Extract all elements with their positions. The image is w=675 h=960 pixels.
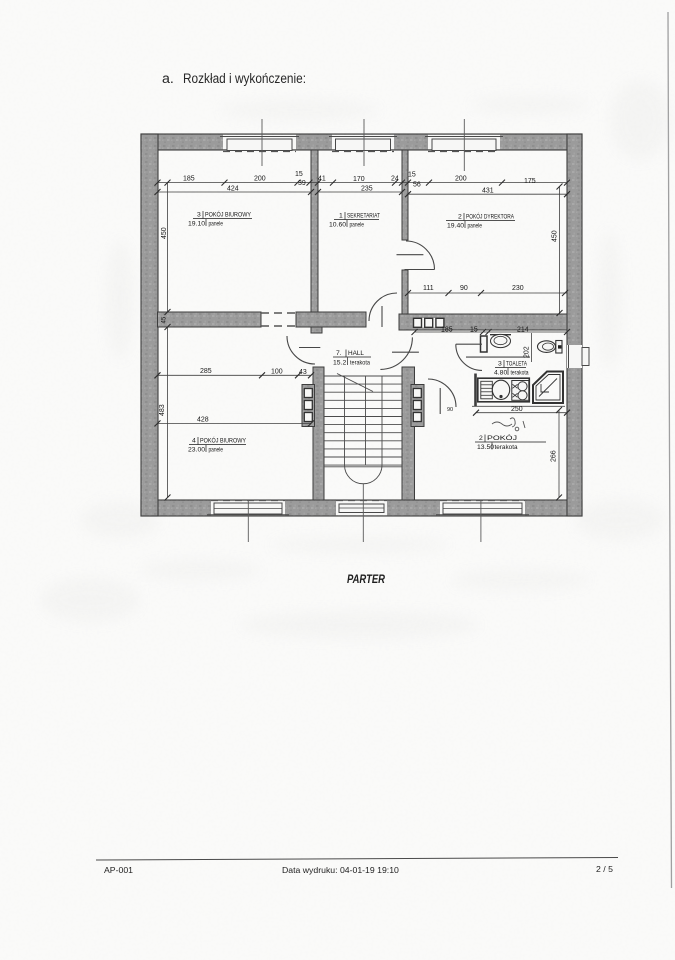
svg-text:19.10: 19.10 [188, 221, 205, 228]
svg-text:230: 230 [512, 285, 524, 292]
svg-text:POKÓJ BIUROWY: POKÓJ BIUROWY [205, 210, 251, 219]
svg-text:3: 3 [197, 212, 201, 219]
svg-text:24: 24 [391, 176, 399, 183]
svg-text:90: 90 [460, 285, 468, 292]
svg-text:terakota: terakota [350, 360, 370, 367]
svg-text:15: 15 [470, 327, 478, 334]
svg-text:100: 100 [271, 369, 283, 376]
svg-text:POKÓJ: POKÓJ [487, 433, 517, 442]
svg-text:431: 431 [482, 188, 494, 195]
svg-text:panele: panele [209, 221, 224, 228]
svg-text:2: 2 [458, 214, 462, 221]
svg-text:170: 170 [353, 176, 365, 183]
svg-text:200: 200 [455, 176, 467, 183]
svg-text:terakota: terakota [495, 444, 518, 451]
svg-text:450: 450 [552, 230, 559, 242]
svg-text:7.: 7. [336, 350, 342, 357]
svg-text:2 / 5: 2 / 5 [596, 864, 613, 874]
svg-text:a.: a. [162, 71, 174, 87]
svg-text:483: 483 [159, 404, 166, 416]
svg-text:450: 450 [161, 227, 168, 239]
svg-text:terakota: terakota [511, 370, 529, 377]
svg-text:panele: panele [350, 222, 365, 229]
svg-text:185: 185 [183, 176, 195, 183]
svg-text:AP-001: AP-001 [104, 865, 133, 875]
svg-text:175: 175 [524, 178, 536, 185]
svg-text:39: 39 [298, 180, 306, 187]
svg-text:202: 202 [524, 346, 531, 358]
svg-text:13.50: 13.50 [477, 444, 494, 451]
svg-text:panele: panele [209, 447, 224, 454]
svg-text:111: 111 [423, 285, 434, 292]
svg-text:19.40: 19.40 [447, 223, 464, 230]
svg-text:45: 45 [162, 316, 168, 323]
svg-text:POKÓJ DYREKTORA: POKÓJ DYREKTORA [466, 212, 514, 221]
svg-text:4.80: 4.80 [494, 370, 507, 377]
svg-text:43: 43 [299, 369, 307, 376]
svg-text:Rozkład i wykończenie:: Rozkład i wykończenie: [183, 71, 306, 87]
svg-text:200: 200 [254, 176, 266, 183]
svg-text:250: 250 [511, 406, 523, 413]
svg-text:panele: panele [468, 223, 483, 230]
svg-text:41: 41 [318, 176, 326, 183]
svg-text:HALL: HALL [348, 350, 364, 357]
svg-text:1: 1 [339, 213, 343, 220]
svg-text:POKÓJ BIUROWY: POKÓJ BIUROWY [200, 436, 246, 445]
svg-text:285: 285 [200, 368, 212, 375]
svg-text:PARTER: PARTER [347, 574, 386, 586]
svg-text:15: 15 [408, 172, 416, 179]
svg-text:185: 185 [441, 327, 453, 334]
svg-text:2: 2 [479, 435, 483, 442]
svg-text:15.2: 15.2 [333, 360, 346, 367]
svg-text:90: 90 [447, 407, 453, 413]
svg-text:15: 15 [295, 171, 303, 178]
svg-text:424: 424 [227, 186, 239, 193]
svg-text:235: 235 [361, 186, 373, 193]
svg-text:10.60: 10.60 [329, 222, 346, 229]
svg-text:Data wydruku: 04-01-19 19:10: Data wydruku: 04-01-19 19:10 [282, 865, 399, 875]
svg-text:214: 214 [517, 327, 529, 334]
svg-text:3: 3 [498, 361, 502, 368]
svg-text:4: 4 [192, 438, 196, 445]
svg-text:TOALETA: TOALETA [506, 361, 527, 368]
svg-text:23.00: 23.00 [188, 447, 205, 454]
svg-text:SEKRETARIAT: SEKRETARIAT [347, 213, 380, 220]
svg-text:266: 266 [551, 450, 558, 462]
svg-text:56: 56 [413, 182, 421, 189]
svg-text:428: 428 [197, 417, 209, 424]
